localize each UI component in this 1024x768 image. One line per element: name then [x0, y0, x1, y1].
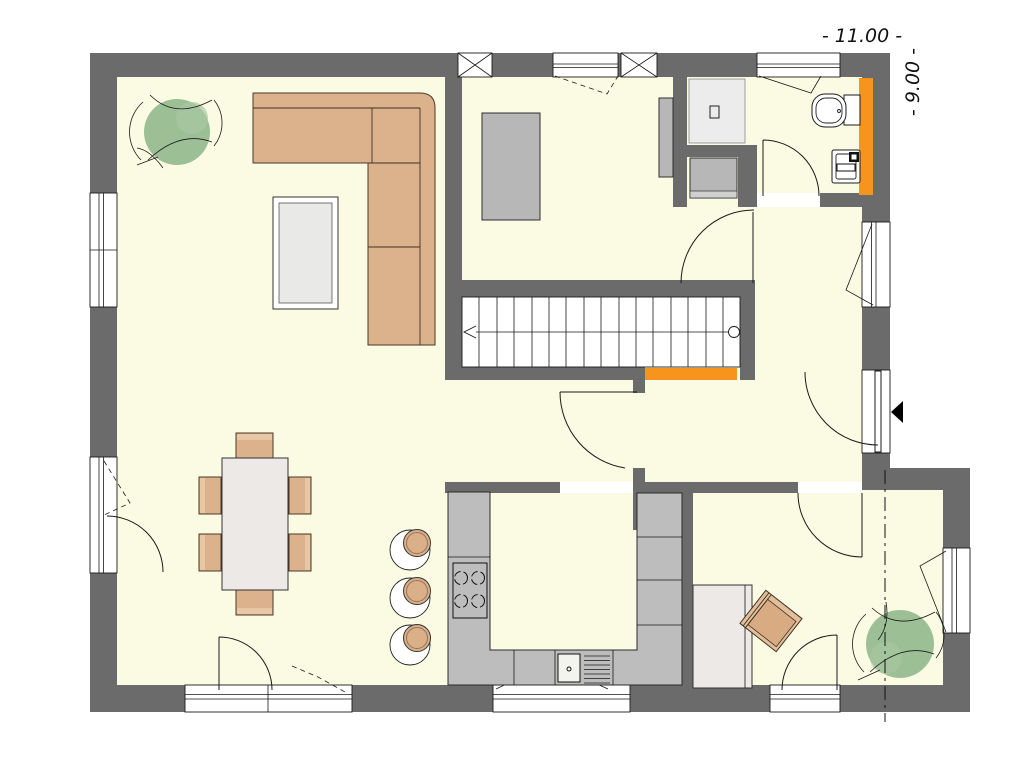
chimney-shaft-icon: [621, 53, 657, 77]
dimension-width-label: - 11.00 -: [822, 25, 902, 47]
staircase: [462, 297, 740, 367]
dining-chair: [236, 590, 273, 615]
coffee-table: [273, 197, 338, 309]
wardrobe: [659, 98, 673, 177]
bar-stool: [390, 625, 431, 666]
dining-table: [222, 458, 288, 590]
bar-stool: [390, 530, 431, 571]
floor-plan-canvas: - 11.00 - - 9.00 -: [0, 0, 1024, 768]
living-room-window: [90, 193, 117, 307]
office-desk: [693, 585, 752, 688]
stair-start-circle-icon: [729, 327, 740, 338]
toilet: [812, 94, 860, 127]
understair-orange-strip: [645, 368, 737, 380]
dining-chair: [199, 534, 221, 571]
washing-machine: [690, 158, 737, 198]
dining-chair: [289, 477, 311, 514]
dimension-height-label: - 9.00 -: [902, 48, 924, 116]
bar-stool: [390, 578, 431, 619]
study-bed: [482, 113, 540, 220]
floor-plan-drawing: - 11.00 - - 9.00 -: [0, 0, 1024, 768]
dining-chair: [289, 534, 311, 571]
dining-chair: [199, 477, 221, 514]
dining-chair: [236, 433, 273, 458]
entrance-arrow-icon: [891, 401, 903, 423]
chimney-shaft-icon: [458, 53, 492, 77]
shower: [689, 79, 745, 143]
bathroom-orange-wall-strip: [859, 78, 873, 195]
bathroom-sink: [832, 150, 860, 183]
